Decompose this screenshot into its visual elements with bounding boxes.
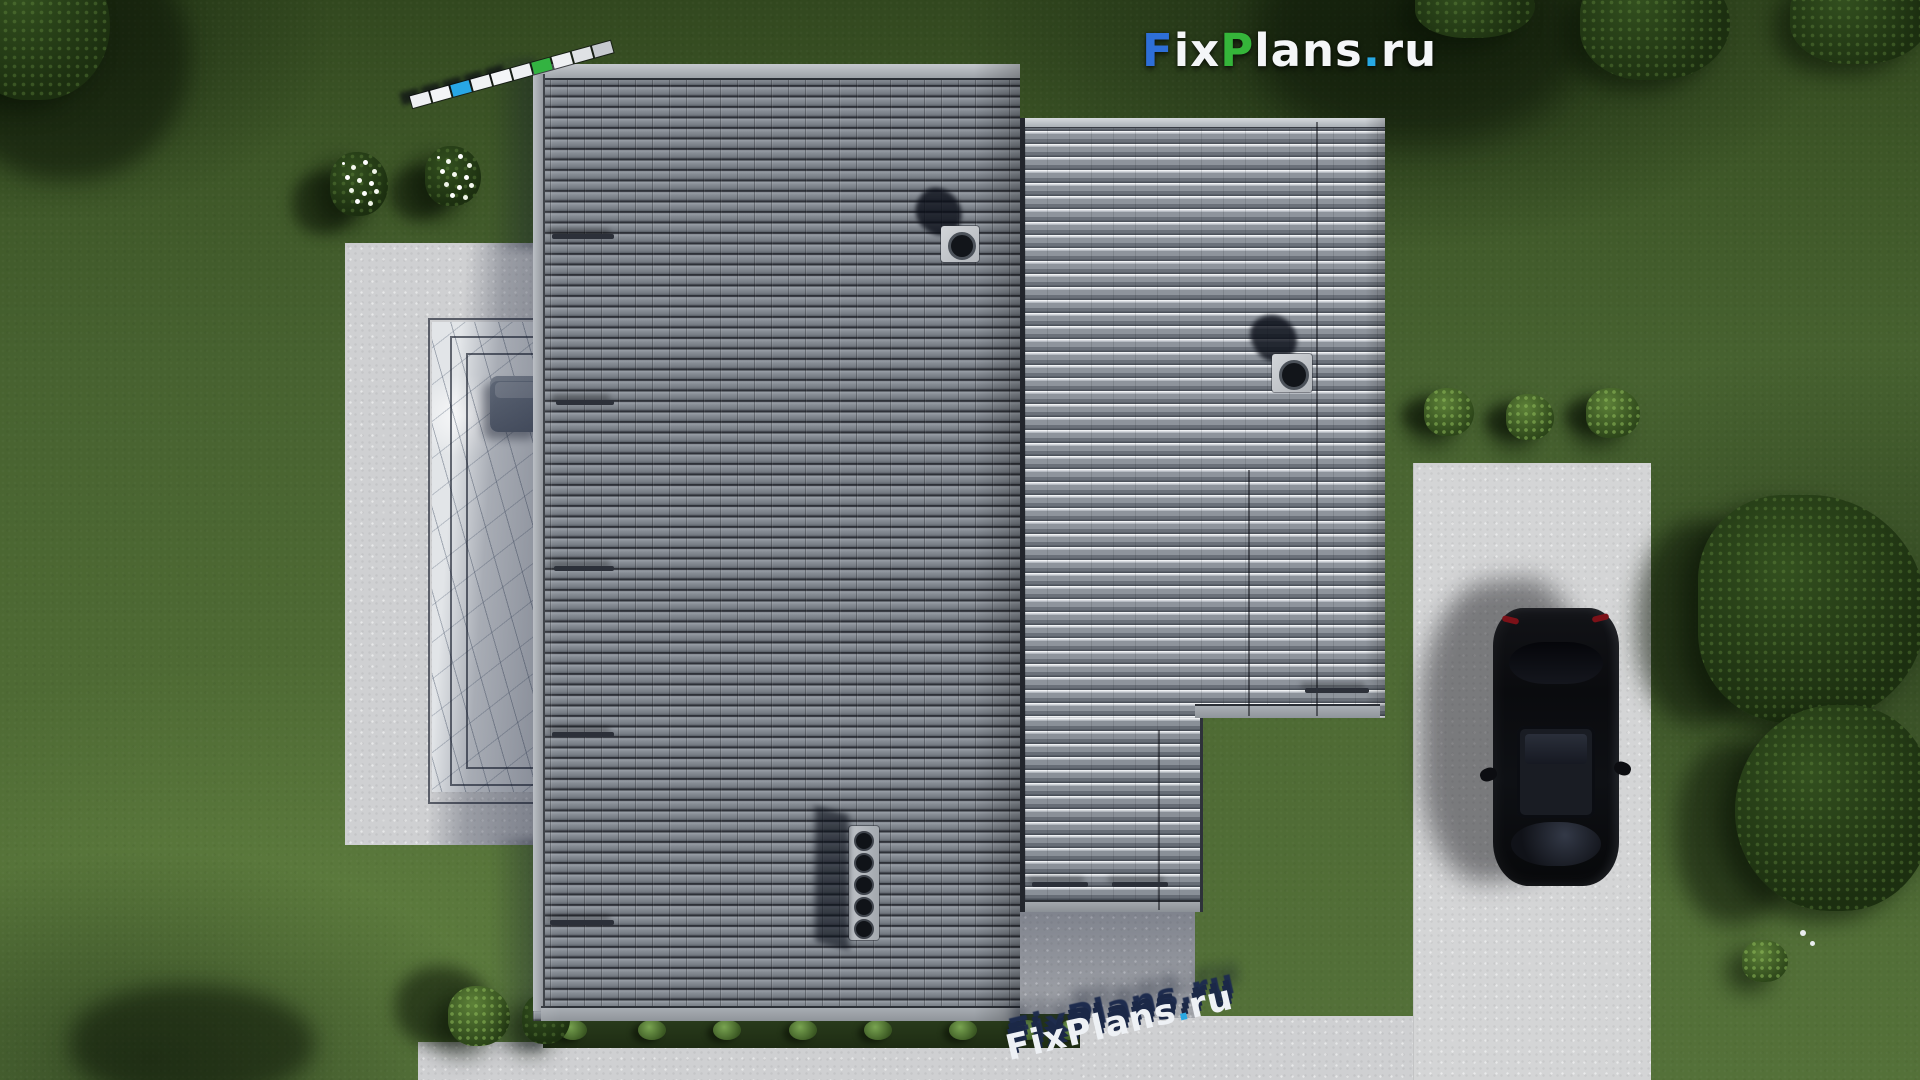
roof-right-ribbed-section bbox=[1020, 118, 1385, 718]
vent-pipe-array bbox=[849, 826, 879, 940]
white-speck bbox=[1800, 930, 1806, 936]
bush bbox=[448, 986, 510, 1046]
white-speck bbox=[1810, 941, 1815, 946]
shrub bbox=[864, 1020, 892, 1040]
vent-pipe bbox=[854, 853, 874, 873]
bush bbox=[1424, 388, 1474, 436]
shrub bbox=[789, 1020, 817, 1040]
car-rear-window bbox=[1509, 642, 1603, 684]
tree-canopy bbox=[1698, 495, 1920, 723]
snow-guard bbox=[1305, 688, 1369, 693]
terrace-stone-inlay bbox=[432, 322, 545, 792]
roof-fascia bbox=[1195, 704, 1380, 718]
snow-guard bbox=[554, 566, 614, 571]
roof-vent bbox=[915, 190, 985, 265]
site-logo: FixPlans.ru bbox=[1142, 24, 1437, 77]
vent-pipe bbox=[948, 232, 976, 260]
vent-pipe bbox=[854, 897, 874, 917]
snow-guard bbox=[552, 234, 614, 239]
terrace-step bbox=[428, 318, 549, 804]
car-sunroof bbox=[1517, 726, 1595, 818]
roof-fascia bbox=[1025, 900, 1200, 912]
vent-pipe bbox=[1279, 360, 1309, 390]
logo-part: ix bbox=[1174, 24, 1220, 77]
vent-pipe bbox=[854, 831, 874, 851]
snow-guard bbox=[550, 920, 614, 925]
logo-part: ru bbox=[1381, 24, 1437, 77]
vent-pipe bbox=[854, 919, 874, 939]
shrub bbox=[713, 1020, 741, 1040]
logo-part: lans bbox=[1254, 24, 1363, 77]
roof-fascia bbox=[541, 1006, 1020, 1021]
tree-canopy bbox=[1735, 705, 1920, 911]
shrub bbox=[638, 1020, 666, 1040]
logo-part: F bbox=[1142, 24, 1174, 77]
roof-vent bbox=[1250, 314, 1322, 394]
bush bbox=[1506, 394, 1554, 440]
bush bbox=[1586, 388, 1640, 438]
bush bbox=[1742, 940, 1788, 982]
snow-guard bbox=[1032, 882, 1088, 887]
terrace-paving bbox=[345, 243, 547, 845]
snow-guard bbox=[1112, 882, 1168, 887]
flowering-bush bbox=[425, 146, 481, 206]
flowering-bush bbox=[330, 152, 388, 216]
vent-pipe bbox=[854, 875, 874, 895]
roof-gutter bbox=[533, 74, 545, 1011]
roof-shadow bbox=[490, 58, 536, 250]
shrub bbox=[949, 1020, 977, 1040]
aerial-roof-plan-render: FixPlans.ru FixPlans.ru bbox=[0, 0, 1920, 1080]
snow-guard bbox=[556, 400, 614, 405]
roof-seam bbox=[1316, 122, 1318, 716]
logo-part: . bbox=[1363, 24, 1381, 77]
logo-part: P bbox=[1220, 24, 1254, 77]
snow-guard bbox=[552, 732, 614, 737]
roof-cable bbox=[1248, 470, 1250, 716]
car-windshield bbox=[1511, 822, 1601, 866]
parked-car bbox=[1493, 608, 1619, 886]
